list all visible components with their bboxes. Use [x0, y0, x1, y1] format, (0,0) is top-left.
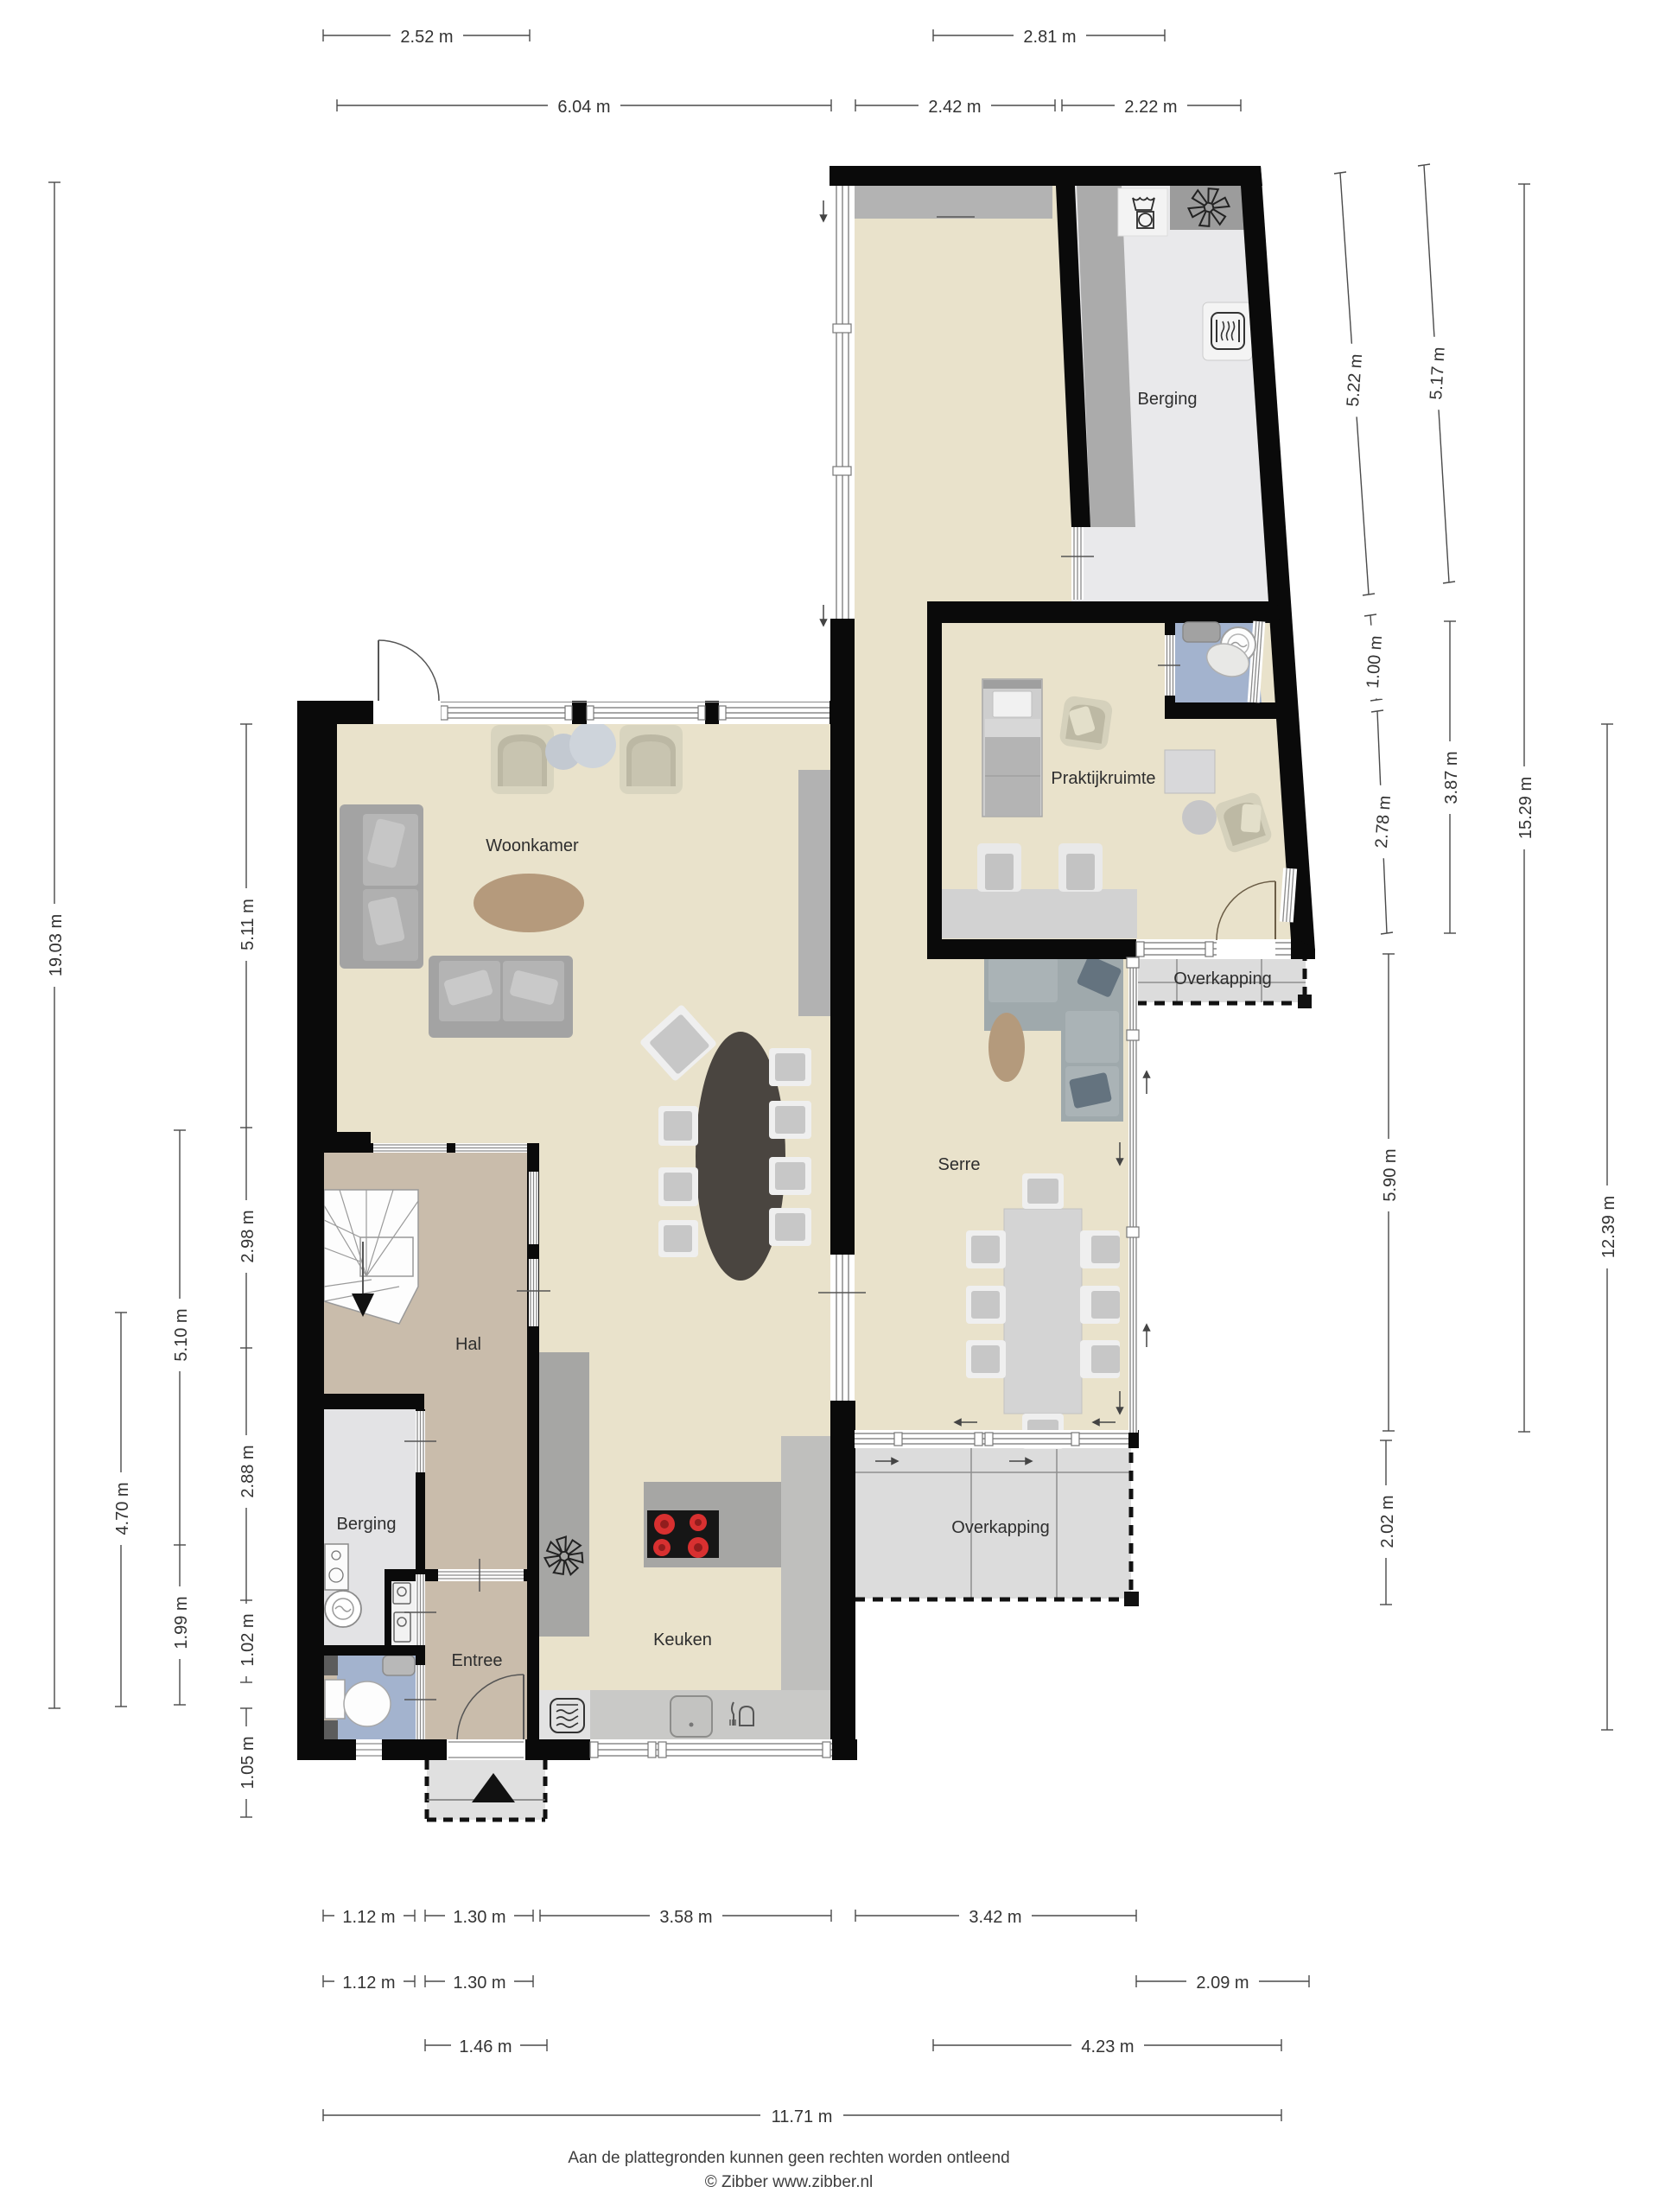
svg-text:2.98 m: 2.98 m	[238, 1210, 257, 1262]
svg-text:2.78 m: 2.78 m	[1372, 795, 1395, 849]
svg-text:Woonkamer: Woonkamer	[486, 836, 579, 855]
svg-text:1.00 m: 1.00 m	[1363, 635, 1386, 690]
svg-text:Praktijkruimte: Praktijkruimte	[1051, 769, 1155, 788]
svg-text:1.12 m: 1.12 m	[342, 1974, 395, 1993]
svg-text:5.22 m: 5.22 m	[1344, 353, 1366, 408]
svg-text:3.42 m: 3.42 m	[969, 1908, 1021, 1927]
svg-text:2.88 m: 2.88 m	[238, 1445, 257, 1497]
svg-text:Overkapping: Overkapping	[1173, 969, 1271, 988]
svg-text:2.09 m: 2.09 m	[1196, 1974, 1249, 1993]
svg-text:15.29 m: 15.29 m	[1516, 777, 1535, 839]
svg-text:11.71 m: 11.71 m	[772, 2107, 833, 2126]
svg-text:1.30 m: 1.30 m	[453, 1908, 505, 1927]
svg-text:Aan de plattegronden kunnen ge: Aan de plattegronden kunnen geen rechten…	[568, 2149, 1009, 2167]
svg-text:2.02 m: 2.02 m	[1378, 1495, 1397, 1548]
svg-text:3.58 m: 3.58 m	[659, 1908, 712, 1927]
svg-text:5.10 m: 5.10 m	[172, 1308, 191, 1361]
svg-text:2.42 m: 2.42 m	[928, 98, 981, 117]
svg-text:1.05 m: 1.05 m	[238, 1736, 257, 1789]
svg-text:12.39 m: 12.39 m	[1599, 1196, 1618, 1258]
svg-text:Berging: Berging	[1138, 390, 1198, 409]
svg-text:© Zibber www.zibber.nl: © Zibber www.zibber.nl	[705, 2173, 874, 2191]
svg-text:Entree: Entree	[452, 1651, 503, 1670]
svg-text:1.02 m: 1.02 m	[238, 1613, 257, 1666]
svg-text:6.04 m: 6.04 m	[557, 98, 610, 117]
svg-text:1.12 m: 1.12 m	[342, 1908, 395, 1927]
svg-text:4.70 m: 4.70 m	[113, 1482, 132, 1535]
svg-text:Overkapping: Overkapping	[951, 1518, 1049, 1537]
svg-text:2.81 m: 2.81 m	[1023, 28, 1076, 47]
svg-text:5.11 m: 5.11 m	[238, 899, 257, 950]
svg-text:Serre: Serre	[938, 1155, 981, 1174]
svg-text:Berging: Berging	[337, 1515, 397, 1534]
svg-text:4.23 m: 4.23 m	[1081, 2037, 1134, 2056]
svg-text:3.87 m: 3.87 m	[1442, 751, 1461, 804]
svg-text:1.30 m: 1.30 m	[453, 1974, 505, 1993]
svg-text:5.17 m: 5.17 m	[1427, 346, 1449, 400]
svg-text:Hal: Hal	[455, 1335, 481, 1354]
svg-text:2.52 m: 2.52 m	[400, 28, 453, 47]
svg-text:2.22 m: 2.22 m	[1124, 98, 1177, 117]
svg-text:1.46 m: 1.46 m	[459, 2037, 512, 2056]
svg-text:1.99 m: 1.99 m	[172, 1596, 191, 1649]
svg-text:5.90 m: 5.90 m	[1381, 1148, 1400, 1201]
svg-text:Keuken: Keuken	[653, 1630, 712, 1649]
svg-text:19.03 m: 19.03 m	[47, 914, 66, 976]
